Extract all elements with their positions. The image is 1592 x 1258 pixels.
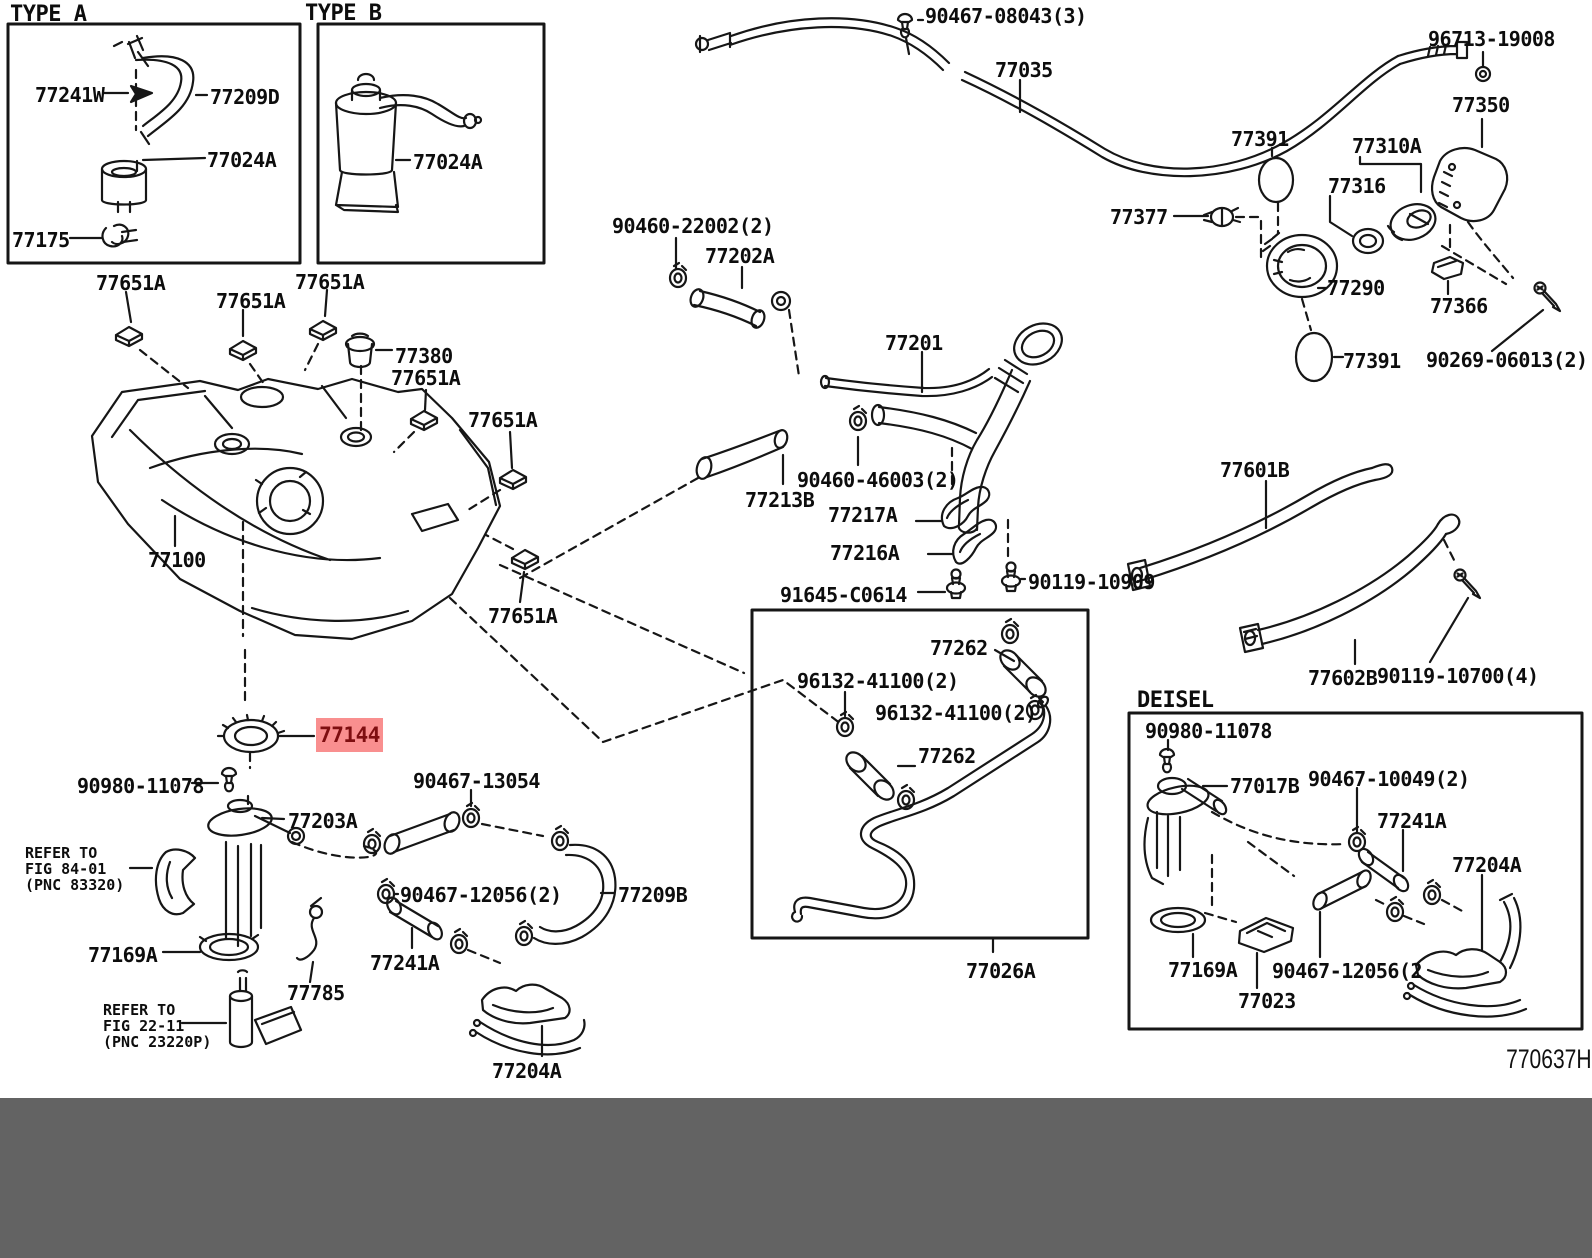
part-label-90467-12056-2: 90467-12056(2	[1272, 961, 1422, 981]
reference-note: REFER TOFIG 84-01(PNC 83320)	[25, 845, 124, 893]
part-label-deisel: DEISEL	[1137, 690, 1213, 712]
part-label-77316: 77316	[1328, 176, 1386, 196]
part-label-90119-10700-4-: 90119-10700(4)	[1377, 666, 1539, 686]
part-label-90467-13054: 90467-13054	[413, 771, 540, 791]
part-label-77377: 77377	[1110, 207, 1168, 227]
fuel-tank-drawing	[92, 379, 500, 639]
part-label-77785: 77785	[287, 983, 345, 1003]
part-label-type-b: TYPE B	[305, 3, 381, 25]
filler-pipe-drawing	[520, 238, 1069, 598]
part-label-77026a: 77026A	[966, 961, 1035, 981]
part-label-77391: 77391	[1343, 351, 1401, 371]
part-label-77035: 77035	[995, 60, 1053, 80]
part-label-77201: 77201	[885, 333, 943, 353]
part-label-96132-41100-2-: 96132-41100(2)	[797, 671, 959, 691]
part-label-77202a: 77202A	[705, 246, 774, 266]
part-label-90460-22002-2-: 90460-22002(2)	[612, 216, 774, 236]
part-label-77601b: 77601B	[1220, 460, 1289, 480]
tank-band-drawing	[1128, 464, 1480, 664]
part-label-96713-19008: 96713-19008	[1428, 29, 1555, 49]
part-label-77216a: 77216A	[830, 543, 899, 563]
part-label-96132-41100-2-: 96132-41100(2)	[875, 703, 1037, 723]
part-label-90269-06013-2-: 90269-06013(2)	[1426, 350, 1588, 370]
part-label-90119-10909: 90119-10909	[1028, 572, 1155, 592]
reference-note: REFER TOFIG 22-11(PNC 23220P)	[103, 1002, 211, 1050]
part-label-77017b: 77017B	[1230, 776, 1299, 796]
part-label-77213b: 77213B	[745, 490, 814, 510]
part-label-90467-10049-2-: 90467-10049(2)	[1308, 769, 1470, 789]
part-label-77651a: 77651A	[391, 368, 460, 388]
part-label-91645-c0614: 91645-C0614	[780, 585, 907, 605]
part-label-77209b: 77209B	[618, 885, 687, 905]
part-label-77262: 77262	[918, 746, 976, 766]
part-label-type-a: TYPE A	[10, 4, 86, 26]
part-label-90460-46003-2-: 90460-46003(2)	[797, 470, 959, 490]
part-label-77651a: 77651A	[216, 291, 285, 311]
part-label-77651a: 77651A	[295, 272, 364, 292]
footer-bar: TOYOTA - 771440H010 N - 77144	[0, 1098, 1592, 1258]
figure-code: 770637H	[1507, 1044, 1592, 1075]
part-label-77651a: 77651A	[468, 410, 537, 430]
part-label-77023: 77023	[1238, 991, 1296, 1011]
cushion-pads-drawing	[116, 290, 841, 742]
part-label-77651a: 77651A	[96, 273, 165, 293]
part-label-77391: 77391	[1231, 129, 1289, 149]
part-label-77290: 77290	[1327, 278, 1385, 298]
part-label-77350: 77350	[1452, 95, 1510, 115]
part-label-77602b: 77602B	[1308, 668, 1377, 688]
fuel-cap-cluster-drawing	[1174, 119, 1560, 381]
type-b-box	[318, 24, 544, 263]
part-label-77262: 77262	[930, 638, 988, 658]
part-label-77209d: 77209D	[210, 87, 279, 107]
part-label-90467-08043-3-: 90467-08043(3)	[925, 6, 1087, 26]
part-label-77169a: 77169A	[88, 945, 157, 965]
part-label-90467-12056-2-: 90467-12056(2)	[400, 885, 562, 905]
parts-diagram-page: TYPE ATYPE B77241W77209D77024A7717577024…	[0, 0, 1592, 1258]
part-label-77169a: 77169A	[1168, 960, 1237, 980]
part-label-77651a: 77651A	[488, 606, 557, 626]
part-label-77241a: 77241A	[370, 953, 439, 973]
part-label-90980-11078: 90980-11078	[77, 776, 204, 796]
part-label-77241a: 77241A	[1377, 811, 1446, 831]
part-label-77217a: 77217A	[828, 505, 897, 525]
part-label-77100: 77100	[148, 550, 206, 570]
part-label-77204a: 77204A	[492, 1061, 561, 1081]
highlighted-part-label: 77144	[316, 718, 383, 752]
part-label-77310a: 77310A	[1352, 136, 1421, 156]
part-label-77366: 77366	[1430, 296, 1488, 316]
part-label-77380: 77380	[395, 346, 453, 366]
part-label-90980-11078: 90980-11078	[1145, 721, 1272, 741]
part-label-77175: 77175	[12, 230, 70, 250]
part-label-77204a: 77204A	[1452, 855, 1521, 875]
part-label-77203a: 77203A	[288, 811, 357, 831]
part-label-77024a: 77024A	[207, 150, 276, 170]
part-label-77241w: 77241W	[35, 85, 104, 105]
part-label-77024a: 77024A	[413, 152, 482, 172]
breather-tube-box	[752, 610, 1088, 952]
